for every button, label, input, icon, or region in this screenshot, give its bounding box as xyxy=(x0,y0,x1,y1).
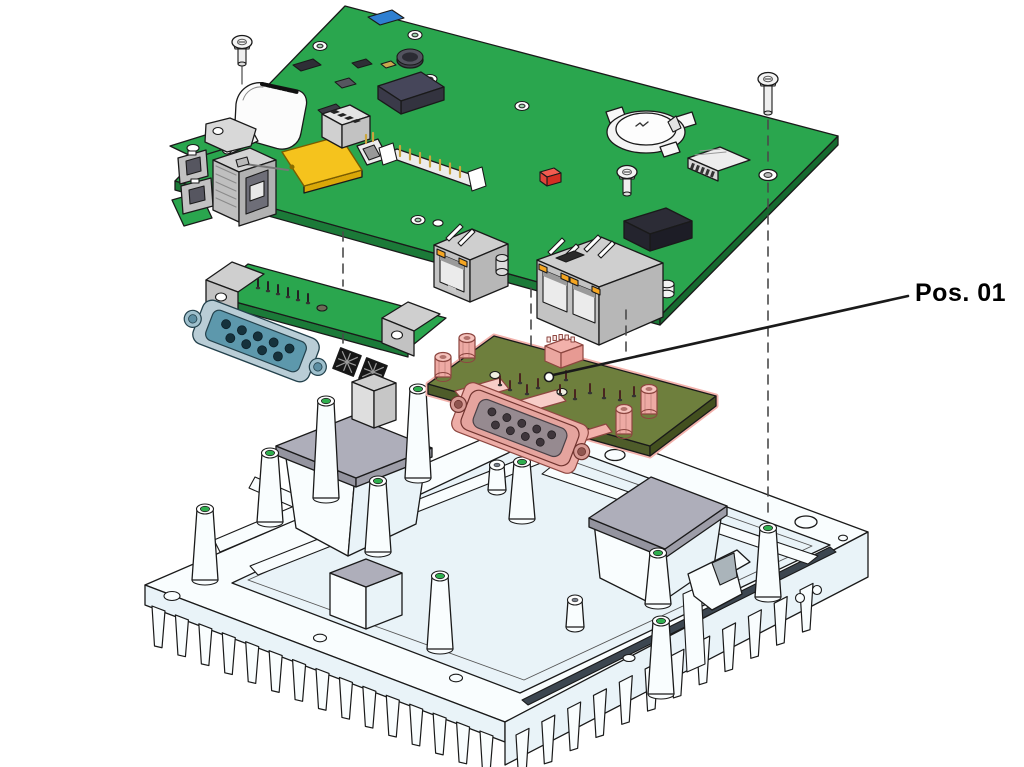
diagram-shape xyxy=(519,104,525,108)
diagram-shape xyxy=(256,287,260,290)
diagram-shape xyxy=(286,296,290,299)
diagram-shape xyxy=(602,397,606,400)
heatsink-fin xyxy=(246,642,259,684)
diagram-shape xyxy=(238,62,246,66)
module-mount-hole xyxy=(490,372,500,379)
diagram-shape xyxy=(321,398,330,403)
diagram-shape xyxy=(509,462,535,519)
diagram-shape xyxy=(412,33,418,37)
led-red xyxy=(540,168,561,186)
diagram-shape xyxy=(435,573,444,578)
diagram-shape xyxy=(413,386,422,391)
diagram-shape xyxy=(764,85,772,113)
diagram-shape xyxy=(365,481,391,552)
heatsink-fin xyxy=(593,689,606,738)
diagram-shape xyxy=(559,335,562,340)
diagram-shape xyxy=(623,192,631,196)
heatsink-fin xyxy=(152,606,165,648)
bracket-hole xyxy=(392,331,403,339)
diagram-shape xyxy=(536,387,540,390)
heatsink-fin xyxy=(748,610,761,659)
diagram-shape xyxy=(565,335,568,340)
heatsink-fin xyxy=(774,597,787,646)
diagram-shape xyxy=(494,463,500,467)
exploded-view-diagram: Pos. 01 xyxy=(0,0,1024,767)
hex-standoff xyxy=(459,334,475,363)
diagram-shape xyxy=(402,52,418,61)
diagram-shape xyxy=(755,528,781,597)
diagram-shape xyxy=(257,453,283,522)
diagram-shape xyxy=(547,337,550,342)
panel-screw xyxy=(496,255,508,276)
heatsink-fin xyxy=(222,633,235,675)
diagram-shape xyxy=(266,290,270,293)
diagram-shape xyxy=(468,167,486,191)
diagram-shape xyxy=(296,299,300,302)
heatsink-fin xyxy=(293,660,306,702)
terminal-insert xyxy=(333,348,361,376)
diagram-shape xyxy=(621,407,628,411)
corner-hole xyxy=(795,516,817,528)
flange-hole xyxy=(450,674,463,682)
diagram-shape xyxy=(374,383,396,428)
standoff-block xyxy=(352,374,396,428)
heatsink-fin xyxy=(410,704,423,746)
heatsink-fin xyxy=(516,728,529,767)
diagram-shape xyxy=(648,621,674,694)
diagram-shape xyxy=(572,598,578,602)
hex-standoff xyxy=(616,405,632,439)
heatsink-fin xyxy=(199,624,212,666)
diagram-shape xyxy=(276,293,280,296)
hex-standoff xyxy=(435,353,451,382)
heatsink-fin xyxy=(433,713,446,755)
inductor xyxy=(397,49,423,68)
hex-standoff xyxy=(641,385,657,419)
diagram-shape xyxy=(553,336,556,341)
flange-hole xyxy=(164,592,180,601)
heatsink-fin xyxy=(175,615,188,657)
diagram-shape xyxy=(200,506,209,511)
diagram-shape xyxy=(192,509,218,580)
diagram-shape xyxy=(571,337,574,342)
diagram-shape xyxy=(518,382,522,385)
diagram-shape xyxy=(763,525,772,530)
diagram-shape xyxy=(306,302,310,305)
mounting-post xyxy=(365,476,391,557)
pos-01-label: Pos. 01 xyxy=(915,279,1006,308)
mounting-post xyxy=(755,523,781,602)
diagram-shape xyxy=(764,173,772,178)
mounting-post xyxy=(257,448,283,527)
heatsink-fin xyxy=(269,651,282,693)
heatsink-fin xyxy=(363,686,376,728)
heatsink-fin xyxy=(316,669,329,711)
diagram-shape xyxy=(313,401,339,498)
boss-post xyxy=(488,460,506,495)
boss-post xyxy=(566,595,584,632)
diagram-shape xyxy=(464,336,471,340)
side-hole xyxy=(796,594,805,603)
diagram-shape xyxy=(653,550,662,555)
diagram-shape xyxy=(558,393,562,396)
side-hole xyxy=(813,586,822,595)
heatsink-fin xyxy=(480,731,493,767)
daughter-board xyxy=(177,262,446,428)
diagram-shape xyxy=(265,450,274,455)
mounting-post xyxy=(405,384,431,483)
diagram-shape xyxy=(656,618,665,623)
corner-hole xyxy=(605,450,625,461)
heatsink-fin xyxy=(619,676,632,725)
mounting-post xyxy=(648,616,674,699)
diagram-shape xyxy=(440,355,447,359)
screw-icon xyxy=(758,73,778,116)
screw-icon xyxy=(232,36,252,67)
diagram-shape xyxy=(317,305,327,311)
diagram-shape xyxy=(188,151,196,155)
diagram-shape xyxy=(618,399,622,402)
heatsink-fin xyxy=(723,623,736,672)
leader-dot xyxy=(545,373,554,382)
diagram-shape xyxy=(427,576,453,649)
diagram-shape xyxy=(632,395,636,398)
mounting-post xyxy=(427,571,453,654)
heatsink-fin xyxy=(457,722,470,764)
heatsink-fin xyxy=(542,715,555,764)
diagram-shape xyxy=(290,165,295,170)
diagram-shape xyxy=(496,269,508,276)
diagram-shape xyxy=(573,398,577,401)
heatsink-fin xyxy=(568,702,581,751)
diagram-shape xyxy=(525,393,529,396)
pedestal-small xyxy=(330,559,402,629)
mounting-post xyxy=(192,504,218,585)
diagram-shape xyxy=(517,459,526,464)
diagram-shape xyxy=(373,478,382,483)
diagram-shape xyxy=(191,179,199,183)
diagram-shape xyxy=(405,389,431,478)
washer xyxy=(433,220,443,226)
coin-cell xyxy=(616,113,676,145)
diagram-shape xyxy=(317,44,323,48)
diagram-shape xyxy=(508,389,512,392)
diagram-shape xyxy=(564,379,568,382)
socket-connector xyxy=(322,105,370,148)
diagram-canvas xyxy=(0,0,1024,767)
diagram-shape xyxy=(588,392,592,395)
bracket-tab-hole xyxy=(213,128,223,135)
heatsink-fin xyxy=(386,695,399,737)
flange-hole xyxy=(314,634,327,642)
heatsink-fin xyxy=(800,583,813,632)
flange-hole xyxy=(623,655,635,662)
heatsink-fin xyxy=(339,677,352,719)
diagram-shape xyxy=(496,255,508,262)
diagram-shape xyxy=(764,111,772,115)
mounting-post xyxy=(313,396,339,503)
diagram-shape xyxy=(645,553,671,604)
diagram-shape xyxy=(498,384,502,387)
bracket-hole xyxy=(216,293,227,301)
diagram-shape xyxy=(415,218,421,222)
diagram-shape xyxy=(646,387,653,391)
corner-hole-small xyxy=(839,535,848,541)
